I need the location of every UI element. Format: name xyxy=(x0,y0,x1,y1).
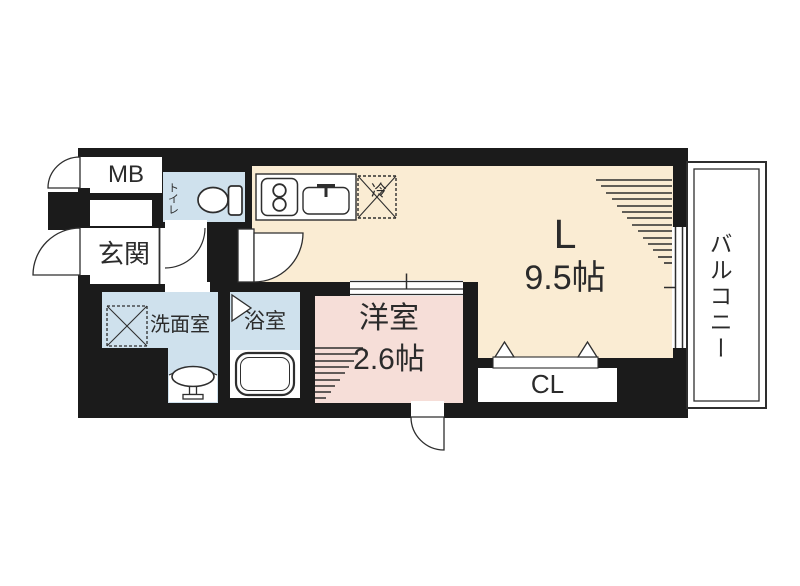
western-room-window xyxy=(350,274,463,297)
washroom-label: 洗面室 xyxy=(140,315,220,336)
floor-plan-canvas: MB 玄関 トイレ 洗面室 浴室 洋室 2.6帖 L 9.5帖 CL バルコニー… xyxy=(0,0,800,586)
mb-door-arc xyxy=(48,157,92,188)
balcony-label: バルコニー xyxy=(707,212,731,382)
bathroom-label: 浴室 xyxy=(230,311,300,333)
entrance-label: 玄関 xyxy=(90,241,158,268)
washbasin-icon xyxy=(169,367,217,403)
sink-icon xyxy=(303,186,349,215)
western-room-size: 2.6帖 xyxy=(315,344,463,376)
western-room-label: 洋室 xyxy=(315,303,463,335)
stove-icon xyxy=(262,179,298,216)
living-label: L xyxy=(500,213,630,256)
bathtub-icon xyxy=(236,353,294,395)
meter-box-label: MB xyxy=(90,162,162,187)
closet-folding-door xyxy=(493,342,598,368)
toilet-door-arc xyxy=(165,228,205,268)
closet-label: CL xyxy=(478,371,617,398)
refrigerator-label: 冷 xyxy=(360,184,398,201)
toilet-label: トイレ xyxy=(166,176,178,220)
floor-plan-linework xyxy=(0,0,800,586)
western-room-door xyxy=(411,401,444,450)
balcony-window xyxy=(664,227,686,348)
living-size: 9.5帖 xyxy=(490,261,640,297)
hall-living-door xyxy=(238,229,303,282)
toilet-icon xyxy=(198,186,242,215)
entrance-door-arc xyxy=(33,228,92,275)
